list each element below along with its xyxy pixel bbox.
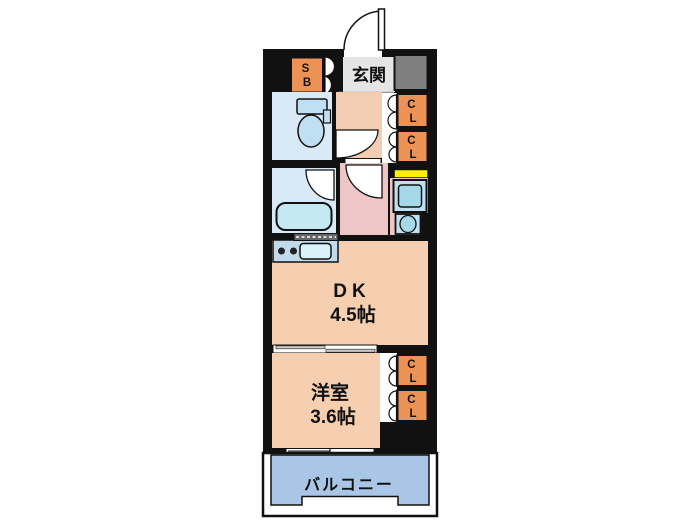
kitchen-sink [300, 244, 331, 260]
floorplan-drawing: S B C L C L [0, 0, 700, 525]
stove-burner-1 [278, 248, 285, 255]
dk-name-label: DK [333, 281, 370, 302]
stove-burner-2 [290, 248, 297, 255]
floorplan-canvas: S B C L C L [0, 0, 700, 525]
entrance-door [344, 9, 385, 58]
dk-size-label: 4.5帖 [330, 303, 375, 326]
western-room-size-label: 3.6帖 [310, 405, 355, 428]
entrance-door-leaf [379, 9, 385, 50]
niche-wall-fill [421, 213, 429, 235]
balcony: バルコニー [263, 453, 437, 516]
western-room-name-label: 洋室 [311, 381, 349, 404]
pipe-space-marker [394, 170, 428, 179]
washing-machine-pan [394, 180, 427, 212]
entrance-door-arc [344, 11, 381, 50]
entrance-label: 玄関 [352, 65, 386, 85]
sliding-door [273, 345, 377, 353]
balcony-label: バルコニー [304, 476, 394, 494]
wash-basin [396, 214, 421, 234]
bathtub [277, 203, 332, 230]
meter-box [395, 55, 428, 90]
entrance-door-opening [344, 49, 382, 58]
